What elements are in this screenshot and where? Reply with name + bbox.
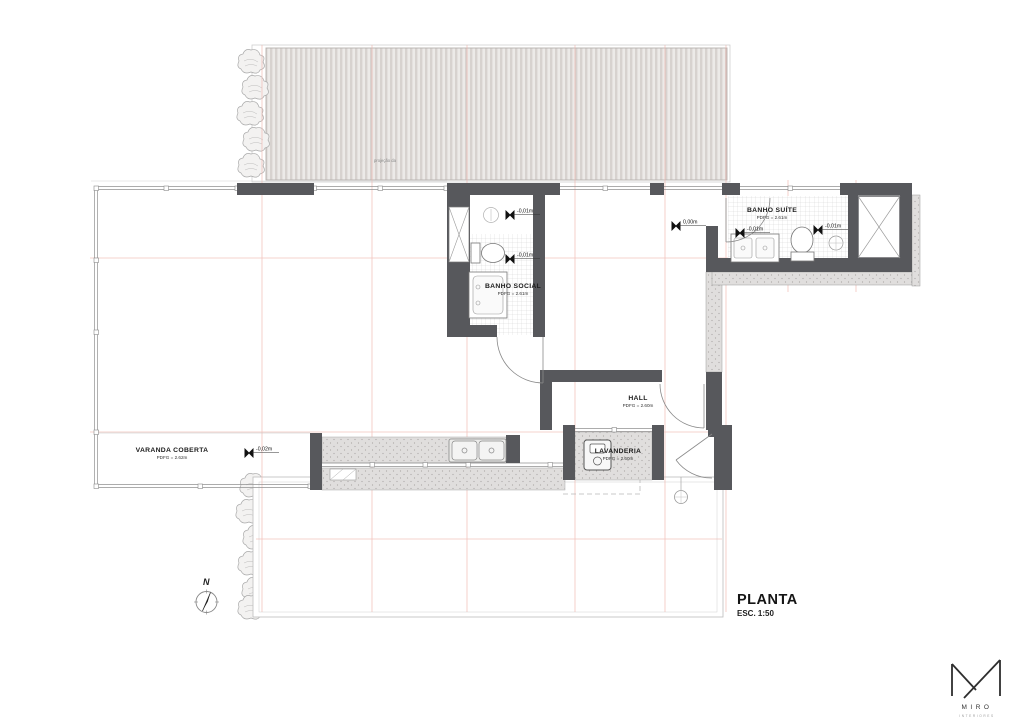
logo-tagline: INTERIORES bbox=[959, 714, 994, 718]
level-value: -0,01m bbox=[517, 209, 533, 215]
room-pd-hall: PDFG = 2.60m bbox=[623, 403, 654, 408]
room-pd-banho-suite: PDFG = 2.61m bbox=[757, 215, 788, 220]
deck-pergola bbox=[252, 45, 730, 182]
sheet-scale: ESC. 1:50 bbox=[737, 609, 774, 618]
elevator-shaft bbox=[858, 196, 900, 258]
level-marker-hall-entry: 0,00m bbox=[672, 220, 707, 231]
level-value: -0,02m bbox=[256, 447, 272, 453]
title-block: PLANTA ESC. 1:50 bbox=[737, 592, 798, 618]
floor-plan-sheet: -0,01m -0,01m 0,00m -0,01m -0,01m -0,02m bbox=[0, 0, 1024, 724]
logo-name: MIRO bbox=[962, 704, 993, 711]
logo-monogram-icon bbox=[952, 660, 1000, 698]
grill-detail bbox=[330, 469, 356, 480]
level-value: -0,01m bbox=[825, 224, 841, 230]
brand-logo: MIRO INTERIORES bbox=[952, 660, 1000, 718]
north-compass: N bbox=[194, 577, 219, 615]
washing-machine bbox=[584, 440, 611, 470]
room-label-hall: HALL bbox=[628, 395, 647, 402]
level-value: -0,01m bbox=[517, 253, 533, 259]
level-value: 0,00m bbox=[683, 220, 697, 226]
level-value: -0,01m bbox=[747, 227, 763, 233]
room-pd-lavanderia: PDFG = 2.60m bbox=[603, 456, 634, 461]
terrace bbox=[253, 477, 723, 617]
floor-plan-drawing: -0,01m -0,01m 0,00m -0,01m -0,01m -0,02m bbox=[0, 0, 1024, 724]
room-label-banho-suite: BANHO SUÍTE bbox=[747, 205, 797, 214]
room-label-banho-social: BANHO SOCIAL bbox=[485, 283, 541, 290]
projection-note: projeção da bbox=[374, 158, 397, 163]
room-pd-varanda: PDFG = 2.62m bbox=[157, 455, 188, 460]
room-label-lavanderia: LAVANDERIA bbox=[595, 448, 642, 455]
north-label: N bbox=[203, 577, 210, 587]
duct-shaft bbox=[449, 207, 469, 262]
kitchen-sink bbox=[449, 439, 506, 462]
sheet-title: PLANTA bbox=[737, 592, 798, 608]
room-pd-banho-social: PDFG = 2.61m bbox=[498, 291, 529, 296]
room-label-varanda: VARANDA COBERTA bbox=[136, 447, 209, 454]
